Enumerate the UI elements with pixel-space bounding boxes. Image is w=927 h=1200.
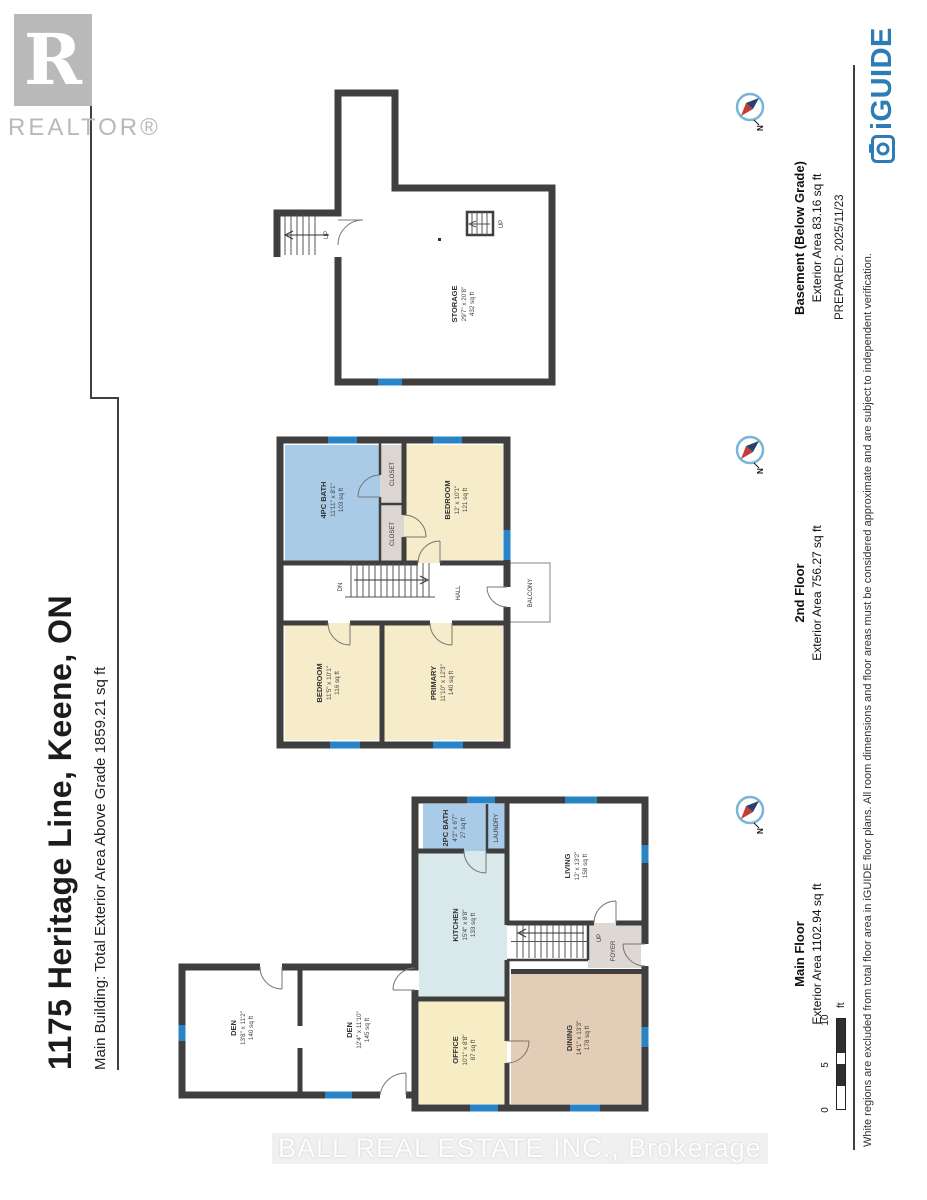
column-dot [438, 238, 441, 241]
svg-text:N: N [756, 468, 765, 474]
header-rule-joint [90, 397, 119, 399]
svg-text:UP: UP [499, 220, 505, 228]
disclaimer-text: White regions are excluded from total fl… [862, 253, 874, 1147]
compass-icon: N [732, 791, 770, 837]
realtor-logo: R [14, 14, 92, 106]
svg-text:4'2" x 6'7": 4'2" x 6'7" [452, 814, 459, 842]
svg-text:4PC BATH: 4PC BATH [319, 482, 328, 519]
svg-text:FOYER: FOYER [611, 940, 617, 961]
svg-text:DINING: DINING [565, 1025, 574, 1051]
iguide-camera-icon [868, 134, 898, 164]
svg-text:116 sq ft: 116 sq ft [334, 671, 341, 695]
svg-text:121 sq ft: 121 sq ft [462, 488, 469, 512]
svg-text:10'1" x 8'8": 10'1" x 8'8" [462, 1034, 469, 1065]
interior-stairs-up [467, 212, 493, 235]
basement-label: Basement (Below Grade) Exterior Area 83.… [792, 108, 824, 368]
svg-text:158 sq ft: 158 sq ft [582, 854, 589, 878]
svg-text:DEN: DEN [229, 1020, 238, 1036]
svg-text:N: N [756, 125, 765, 131]
svg-text:UP: UP [597, 934, 603, 942]
svg-text:CLOSET: CLOSET [390, 522, 396, 546]
svg-text:103 sq ft: 103 sq ft [338, 488, 345, 512]
svg-text:11'11" x 8'1": 11'11" x 8'1" [330, 483, 337, 517]
svg-text:432 sq ft: 432 sq ft [469, 292, 476, 316]
footer-rule [853, 65, 855, 1150]
room-storage [277, 93, 552, 382]
prepared-date: PREPARED: 2025/11/23 [834, 194, 846, 320]
svg-text:11'10" x 12'3": 11'10" x 12'3" [440, 664, 447, 702]
svg-text:87 sq ft: 87 sq ft [470, 1039, 477, 1060]
svg-text:12'4" x 11'10": 12'4" x 11'10" [356, 1011, 363, 1049]
room-hall [285, 563, 503, 623]
compass-icon: N [732, 431, 770, 477]
main-floor-plan: DEN 13'8" x 11'2" 140 sq ft DEN 12'4" x … [177, 795, 650, 1113]
svg-text:LAUNDRY: LAUNDRY [494, 814, 500, 843]
svg-text:PRIMARY: PRIMARY [429, 666, 438, 700]
door-gap [641, 944, 649, 966]
page-title: 1175 Heritage Line, Keene, ON [42, 595, 79, 1070]
svg-text:29'7" x 20'8": 29'7" x 20'8" [461, 287, 468, 322]
svg-text:DN: DN [338, 583, 344, 592]
second-floor-plan: BEDROOM 11'5" x 10'1" 116 sq ft PRIMARY … [275, 435, 557, 750]
svg-text:BEDROOM: BEDROOM [315, 663, 324, 702]
svg-text:140 sq ft: 140 sq ft [248, 1016, 255, 1040]
second-floor-label: 2nd Floor Exterior Area 756.27 sq ft [792, 463, 824, 723]
iguide-logo: iGUIDE [866, 27, 899, 164]
compass-icon: N [732, 88, 770, 134]
svg-text:145 sq ft: 145 sq ft [364, 1018, 371, 1042]
svg-text:14'1" x 13'3": 14'1" x 13'3" [576, 1021, 583, 1056]
realtor-wordmark: REALTOR® [8, 114, 161, 142]
svg-text:12' x 13'2": 12' x 13'2" [574, 852, 581, 881]
svg-text:LIVING: LIVING [563, 853, 572, 878]
brokerage-watermark: BALL REAL ESTATE INC., Brokerage [272, 1133, 768, 1164]
door-gap [260, 964, 282, 971]
svg-text:178 sq ft: 178 sq ft [584, 1026, 591, 1050]
svg-text:11'5" x 10'1": 11'5" x 10'1" [326, 666, 333, 700]
svg-text:HALL: HALL [456, 585, 462, 601]
svg-text:KITCHEN: KITCHEN [451, 908, 460, 941]
main-floor-label: Main Floor Exterior Area 1102.94 sq ft [792, 824, 824, 1084]
svg-text:OFFICE: OFFICE [451, 1036, 460, 1064]
svg-text:N: N [756, 828, 765, 834]
svg-text:DEN: DEN [345, 1022, 354, 1038]
svg-text:12' x 10'1": 12' x 10'1" [454, 486, 461, 515]
svg-text:2PC BATH: 2PC BATH [441, 810, 450, 847]
page-subtitle: Main Building: Total Exterior Area Above… [92, 667, 109, 1070]
svg-text:133 sq ft: 133 sq ft [470, 913, 477, 937]
svg-text:UP: UP [324, 231, 330, 239]
svg-text:140 sq ft: 140 sq ft [448, 671, 455, 695]
stairs-up [511, 925, 588, 958]
basement-plan: STORAGE 29'7" x 20'8" 432 sq ft UP UP [272, 88, 557, 387]
floor-plan-sheet: 1175 Heritage Line, Keene, ON Main Build… [0, 0, 927, 1200]
iguide-wordmark: iGUIDE [866, 27, 898, 130]
svg-text:27 sq ft: 27 sq ft [460, 817, 467, 838]
svg-text:BEDROOM: BEDROOM [443, 480, 452, 519]
svg-text:13'8" x 11'2": 13'8" x 11'2" [240, 1011, 247, 1045]
svg-text:15'4" x 8'8": 15'4" x 8'8" [462, 909, 469, 940]
svg-text:CLOSET: CLOSET [390, 462, 396, 486]
header-rule-left [117, 397, 119, 1070]
rotated-landscape-document: 1175 Heritage Line, Keene, ON Main Build… [0, 0, 927, 1200]
door-gap [380, 1091, 406, 1099]
svg-text:BALCONY: BALCONY [528, 579, 534, 608]
svg-text:STORAGE: STORAGE [450, 286, 459, 323]
door-gap [504, 587, 511, 607]
